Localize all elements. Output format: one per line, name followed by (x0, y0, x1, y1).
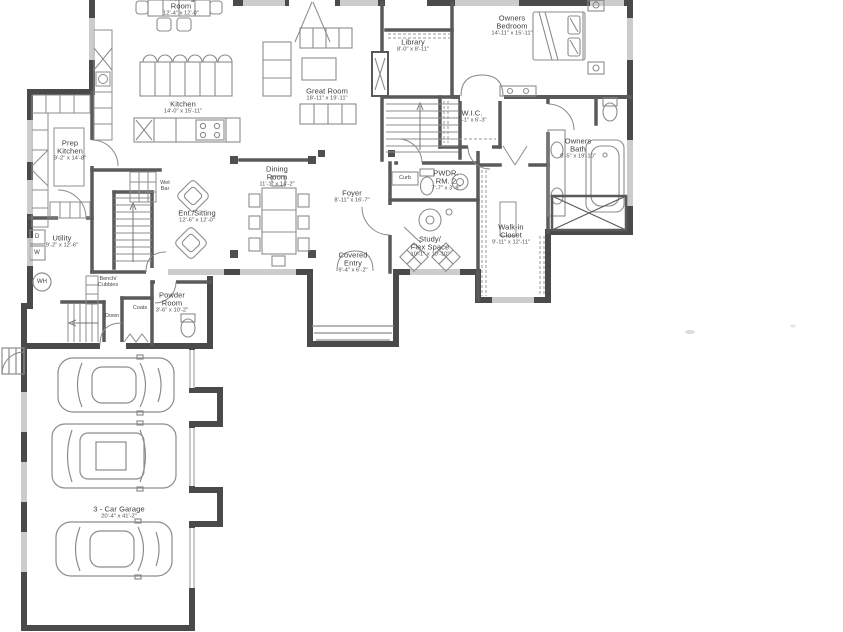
stairs-up-main (114, 198, 152, 262)
powder-toilet (181, 314, 195, 337)
covered-entry-steps (312, 326, 394, 340)
room-label-pwdr-rm-2: PWDR.RM. 27'-7" x 3'-8" (431, 169, 460, 192)
room-label-kitchen: Kitchen14'-0" x 15'-11" (164, 100, 202, 115)
coats-bifold (124, 334, 148, 342)
great-room-furniture (263, 28, 388, 124)
kitchen-island (140, 55, 232, 96)
room-label-dining-room: DiningRoom11'-1" x 14'-2" (259, 165, 294, 188)
label-washer: W (34, 250, 40, 256)
shower-skylight-box (552, 196, 626, 230)
label-coats: Coats (133, 305, 147, 311)
car-2-suv (52, 421, 176, 491)
side-stoop-door (2, 352, 24, 374)
label-bench-cubbies: Bench/ Cubbies (94, 276, 122, 288)
utility-door (58, 190, 86, 218)
island-stools (143, 55, 232, 62)
stairs-down-basement (68, 304, 98, 342)
car-1 (58, 355, 174, 415)
label-curb: Curb (399, 175, 411, 181)
garage-door-openings (189, 350, 195, 588)
closet-door (503, 146, 527, 165)
room-label-foyer: Foyer8'-11" x 16'-7" (334, 189, 369, 204)
label-water-heater: WH (37, 279, 47, 285)
car-3 (56, 519, 172, 579)
room-label-owners-bedroom: OwnersBedroom14'-11" x 15'-11" (491, 14, 532, 37)
room-label-powder-room: PowderRoom3'-6" x 10'-2" (155, 291, 189, 314)
room-label-utility: Utility9'-2" x 12'-6" (46, 234, 78, 249)
room-label-garage: 3 - Car Garage20'-4" x 41'-2" (93, 505, 144, 520)
room-label-study-flex: Study/Flex Space10'-1" x 10'-10" (411, 235, 450, 258)
dining-table (249, 176, 309, 266)
pantry-cabinets (94, 30, 112, 140)
room-label-wic: W.I.C.7'-1" x 6'-3" (457, 109, 486, 124)
label-dryer: D (35, 234, 39, 240)
floor-plan-drawing (0, 0, 843, 632)
label-wet-bar: Wet Bar (156, 180, 174, 192)
room-label-owners-bath: OwnersBath8'-5" x 19'-10" (560, 137, 596, 160)
bedroom-double-door (461, 75, 503, 96)
kitchen-range-counter (134, 118, 240, 142)
room-label-prep-kitchen: PrepKitchen9'-2" x 14'-8" (54, 139, 86, 162)
study-door (362, 207, 390, 235)
room-label-great-room: Great Room18'-11" x 19'-11" (306, 87, 348, 102)
appliance-x (136, 120, 152, 140)
room-label-ent-sitting: Ent./Sitting12'-6" x 12'-0" (178, 209, 215, 224)
scan-smudge (685, 325, 796, 335)
cased-opening-columns (230, 150, 395, 258)
floor-plan: MorningRoom12'-4" x 12'-0" Kitchen14'-0"… (0, 0, 843, 632)
stairs-up-hall (386, 104, 458, 152)
room-label-library: Library8'-0" x 8'-11" (397, 38, 429, 53)
room-label-covered-entry: CoveredEntry9'-4" x 6'-2" (338, 251, 367, 274)
room-label-morning-room: MorningRoom12'-4" x 12'-0" (163, 0, 199, 18)
label-down: Down (105, 313, 119, 319)
room-label-walkin-closet: Walk-inCloset9'-11" x 12'-11" (492, 223, 530, 246)
